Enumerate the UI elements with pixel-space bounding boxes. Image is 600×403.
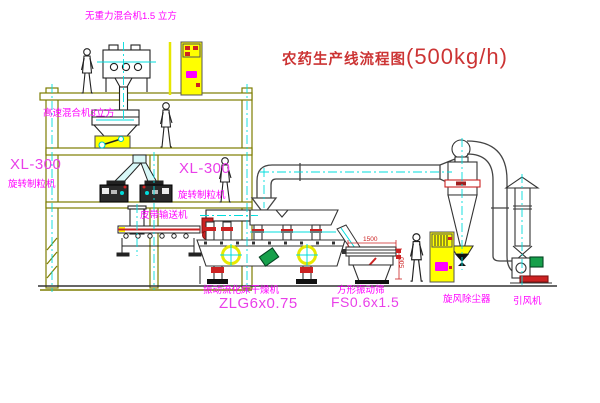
floor-beam-2 bbox=[46, 148, 252, 155]
diagram-canvas: 1500 500 bbox=[0, 0, 600, 403]
exhaust-duct bbox=[252, 159, 455, 210]
granulator-right-unit bbox=[140, 185, 172, 202]
indicator-light bbox=[185, 46, 190, 50]
ground-line bbox=[38, 286, 557, 290]
worker-figure-top-floor bbox=[82, 49, 94, 93]
worker-figure-ground bbox=[411, 234, 423, 281]
control-cabinet-lower bbox=[430, 232, 454, 282]
screen-width-dimension: 1500 bbox=[363, 236, 378, 243]
control-cabinet-upper bbox=[170, 42, 202, 95]
floor-beam-1 bbox=[40, 93, 252, 100]
worker-figure-second-floor bbox=[161, 103, 173, 147]
indicator-light bbox=[193, 46, 198, 50]
granulator-left-unit bbox=[100, 185, 128, 202]
screen-height-dimension: 500 bbox=[399, 257, 406, 268]
indicator-light bbox=[185, 52, 190, 56]
worker-figure-third-floor bbox=[220, 158, 232, 202]
indicator-light bbox=[449, 266, 452, 269]
process-flow-diagram: 1500 500 bbox=[0, 0, 600, 403]
high-speed-mixer bbox=[92, 110, 139, 148]
floor-beam-3 bbox=[46, 202, 252, 208]
induced-draft-fan bbox=[510, 257, 552, 283]
vibrating-screen: 1500 500 bbox=[342, 236, 406, 284]
fan-motor bbox=[530, 257, 543, 267]
zero-gravity-mixer bbox=[97, 45, 156, 113]
belt-conveyor bbox=[117, 226, 201, 256]
indicator-light bbox=[196, 83, 200, 87]
indicator-light bbox=[448, 237, 452, 240]
dryer-hood bbox=[250, 210, 338, 225]
